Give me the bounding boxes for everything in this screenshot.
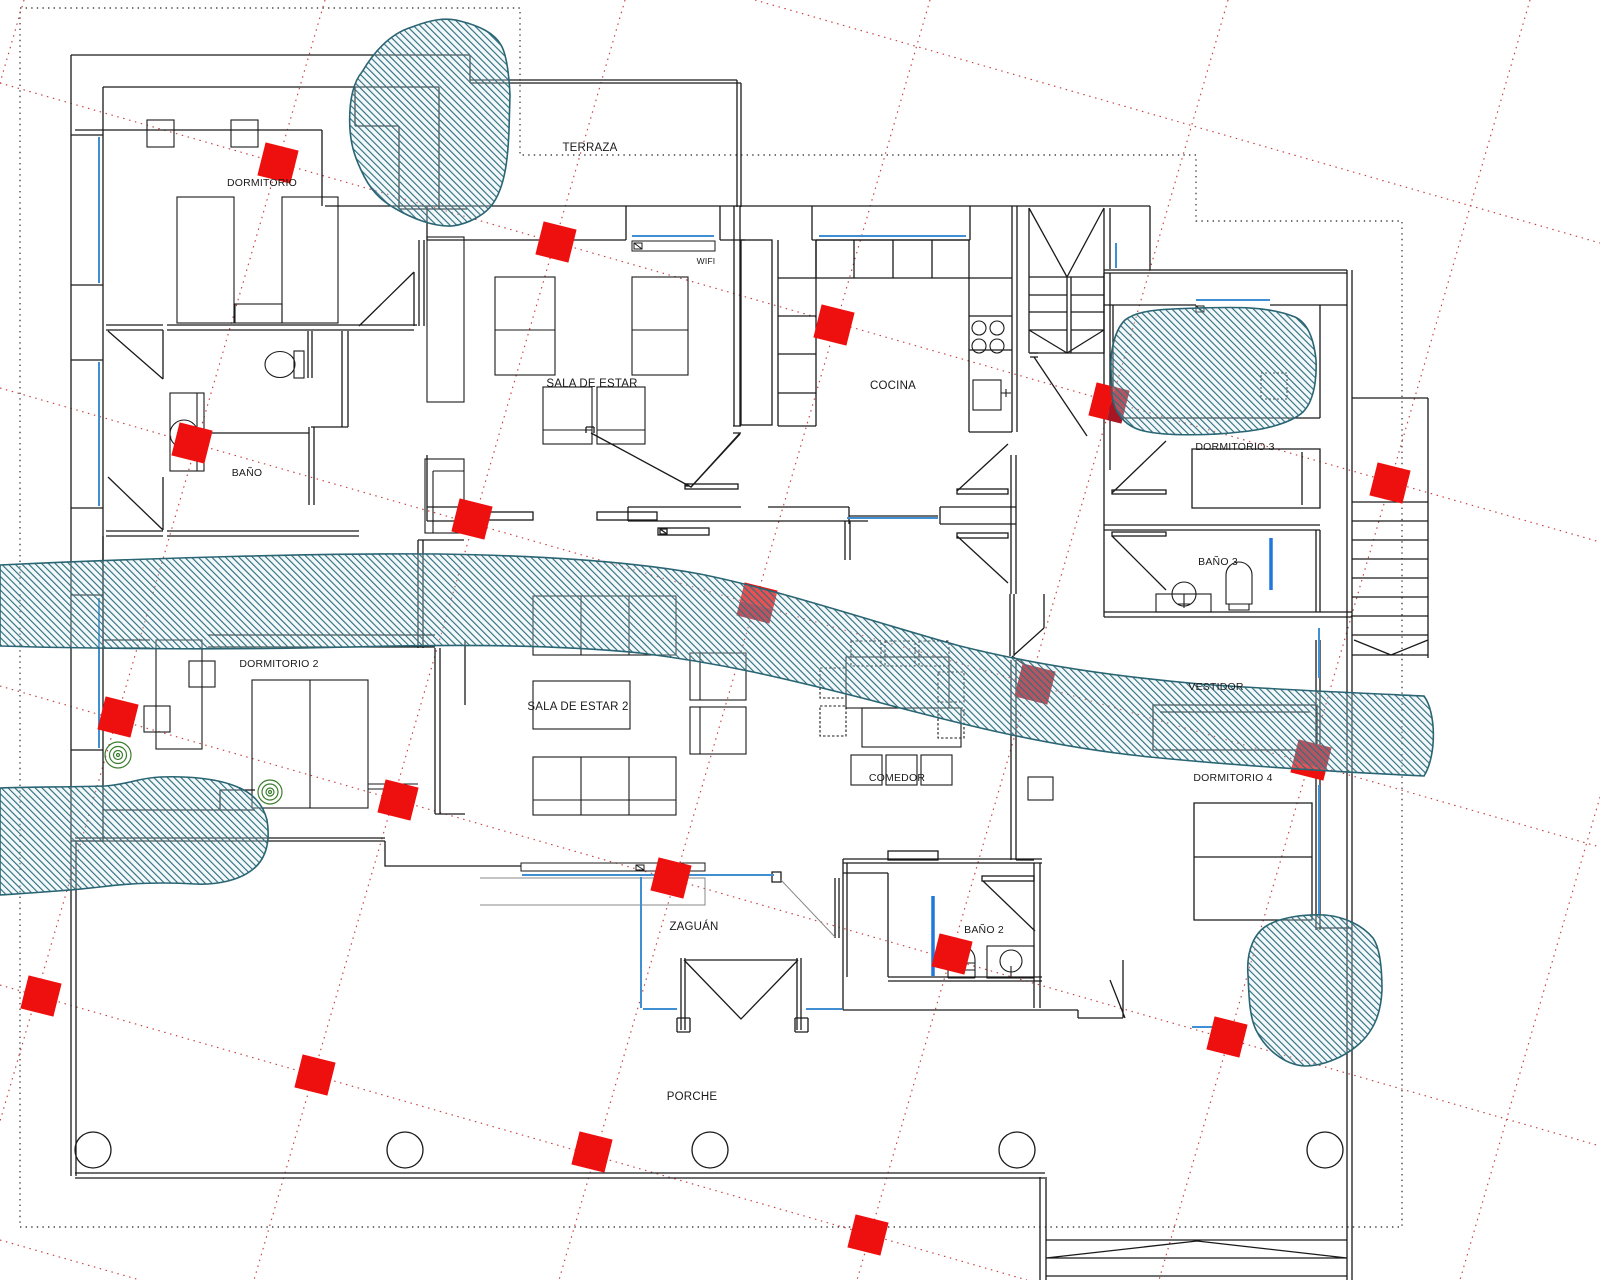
svg-text:SALA DE ESTAR 2: SALA DE ESTAR 2	[527, 701, 628, 713]
svg-text:DORMITORIO 4: DORMITORIO 4	[1193, 772, 1272, 784]
svg-text:DORMITORIO: DORMITORIO	[227, 177, 297, 189]
svg-text:VESTIDOR: VESTIDOR	[1188, 681, 1243, 693]
svg-text:SALA DE ESTAR: SALA DE ESTAR	[546, 378, 637, 390]
svg-text:DORMITORIO 2: DORMITORIO 2	[239, 658, 318, 670]
svg-text:BAÑO 2: BAÑO 2	[964, 923, 1004, 936]
svg-text:BAÑO 3: BAÑO 3	[1198, 555, 1238, 568]
svg-text:WIFI: WIFI	[697, 256, 716, 266]
svg-text:ZAGUÁN: ZAGUÁN	[669, 920, 718, 933]
svg-text:DORMITORIO 3: DORMITORIO 3	[1195, 441, 1274, 453]
svg-text:COMEDOR: COMEDOR	[869, 772, 925, 784]
svg-text:TERRAZA: TERRAZA	[562, 142, 617, 154]
svg-text:COCINA: COCINA	[870, 380, 916, 392]
svg-text:PORCHE: PORCHE	[667, 1091, 718, 1103]
svg-text:BAÑO: BAÑO	[232, 466, 263, 479]
